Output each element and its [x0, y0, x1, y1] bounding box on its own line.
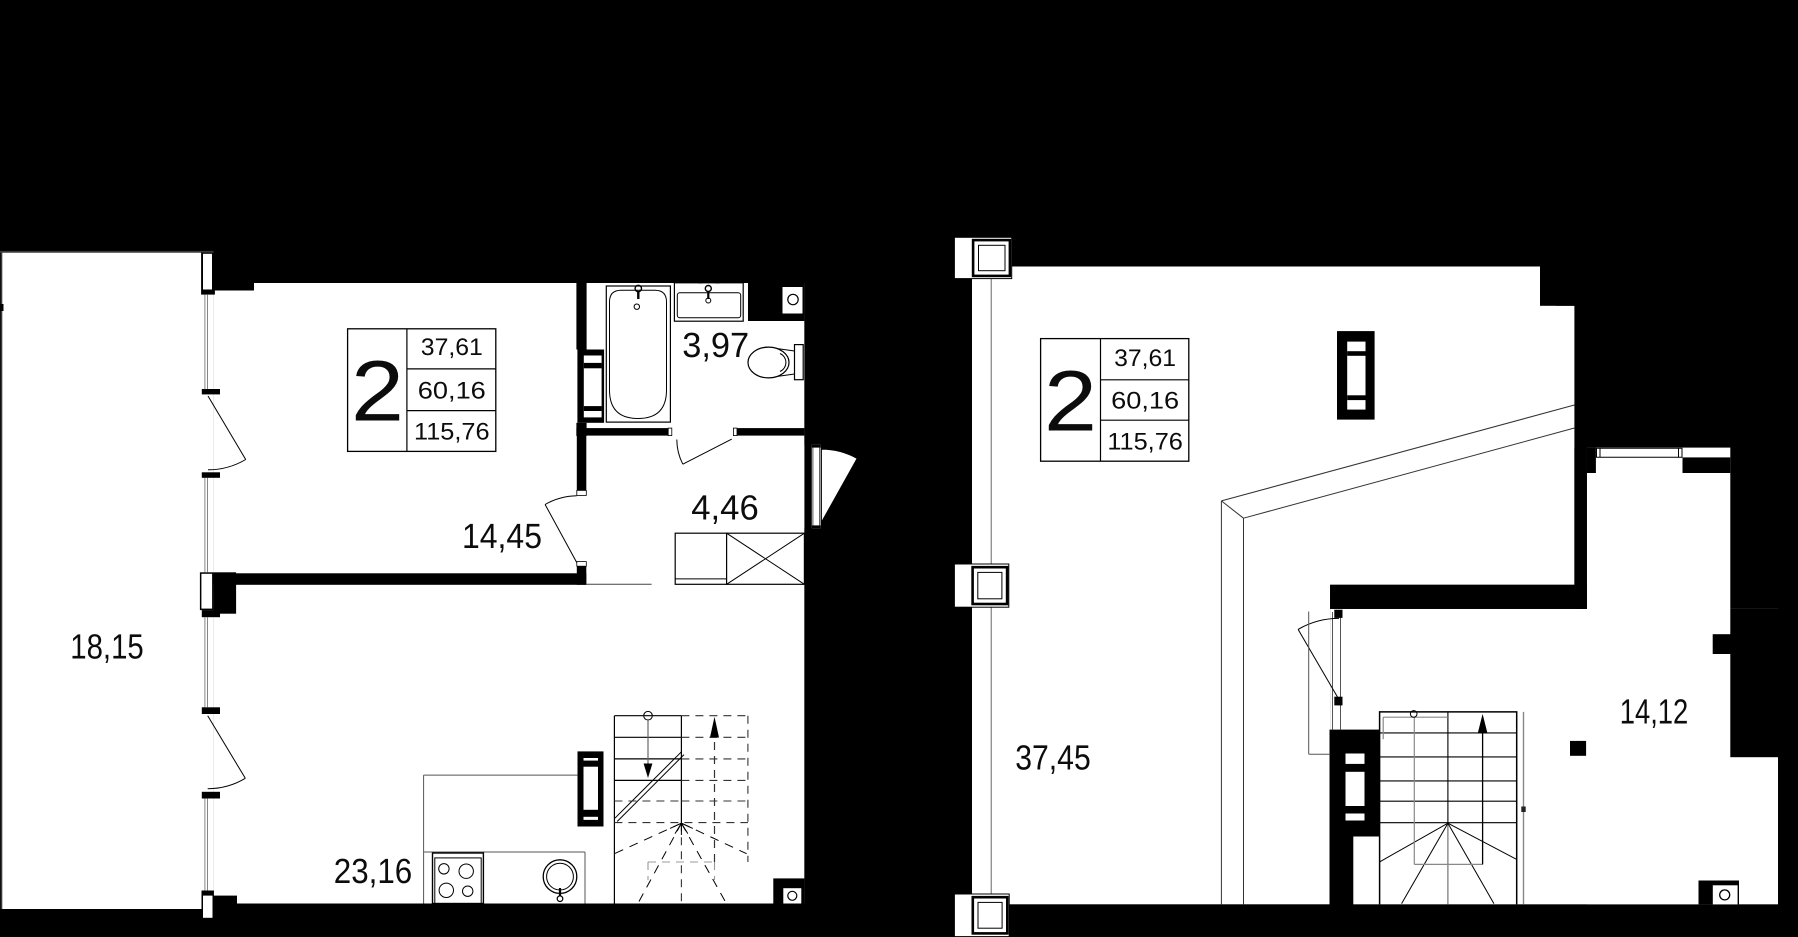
- svg-text:115,76: 115,76: [1107, 428, 1183, 455]
- svg-text:2: 2: [351, 343, 404, 439]
- svg-text:14,12: 14,12: [1620, 693, 1689, 732]
- svg-text:37,61: 37,61: [1114, 345, 1176, 372]
- svg-text:60,16: 60,16: [418, 377, 486, 404]
- svg-text:3,97: 3,97: [682, 326, 749, 365]
- svg-text:14,45: 14,45: [462, 517, 542, 556]
- svg-text:37,61: 37,61: [421, 334, 483, 361]
- svg-text:4,46: 4,46: [691, 489, 759, 528]
- svg-text:23,16: 23,16: [334, 852, 413, 891]
- svg-text:2: 2: [1044, 353, 1097, 449]
- svg-text:115,76: 115,76: [414, 419, 490, 446]
- svg-text:37,45: 37,45: [1015, 739, 1091, 778]
- svg-text:18,15: 18,15: [70, 628, 144, 667]
- svg-text:60,16: 60,16: [1111, 388, 1179, 415]
